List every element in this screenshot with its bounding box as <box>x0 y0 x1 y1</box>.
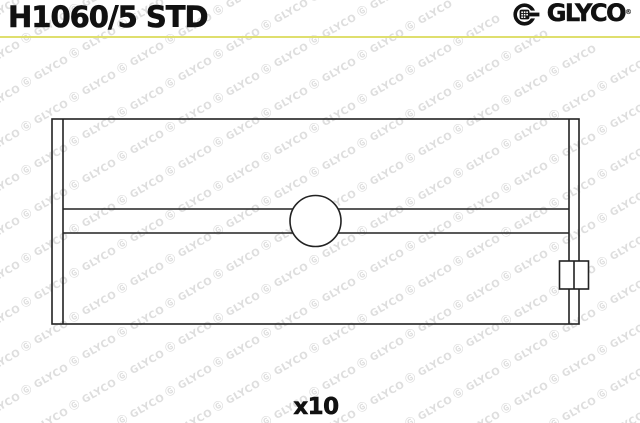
brand-logo: GLYCO® <box>513 2 632 28</box>
glyco-logo-icon <box>513 2 541 28</box>
oil-hole-circle <box>290 196 341 247</box>
registered-trademark: ® <box>625 8 632 16</box>
part-number-title: H1060/5 STD <box>8 0 208 34</box>
brand-name: GLYCO® <box>547 2 632 24</box>
catalog-page: Ⓖ GLYCOⒼ GLYCOⒼ GLYCOⒼ GLYCOⒼ GLYCOⒼ GLY… <box>0 0 640 423</box>
bearing-shell-diagram <box>0 0 640 423</box>
quantity-label: x10 <box>266 394 366 420</box>
